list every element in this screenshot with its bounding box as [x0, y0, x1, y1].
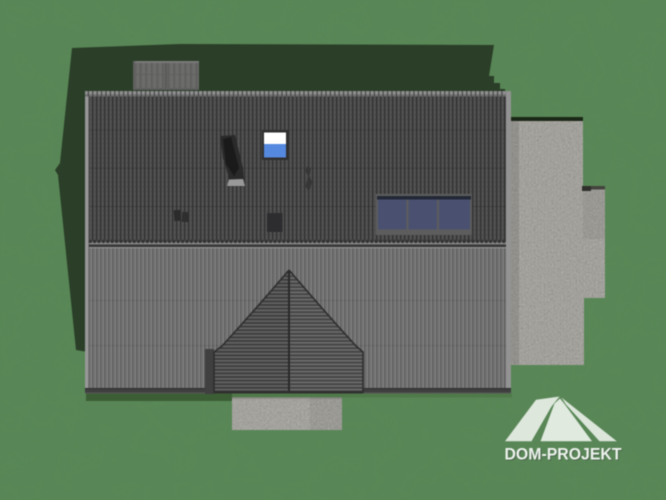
svg-text:DOM-PROJEKT: DOM-PROJEKT [505, 446, 622, 464]
